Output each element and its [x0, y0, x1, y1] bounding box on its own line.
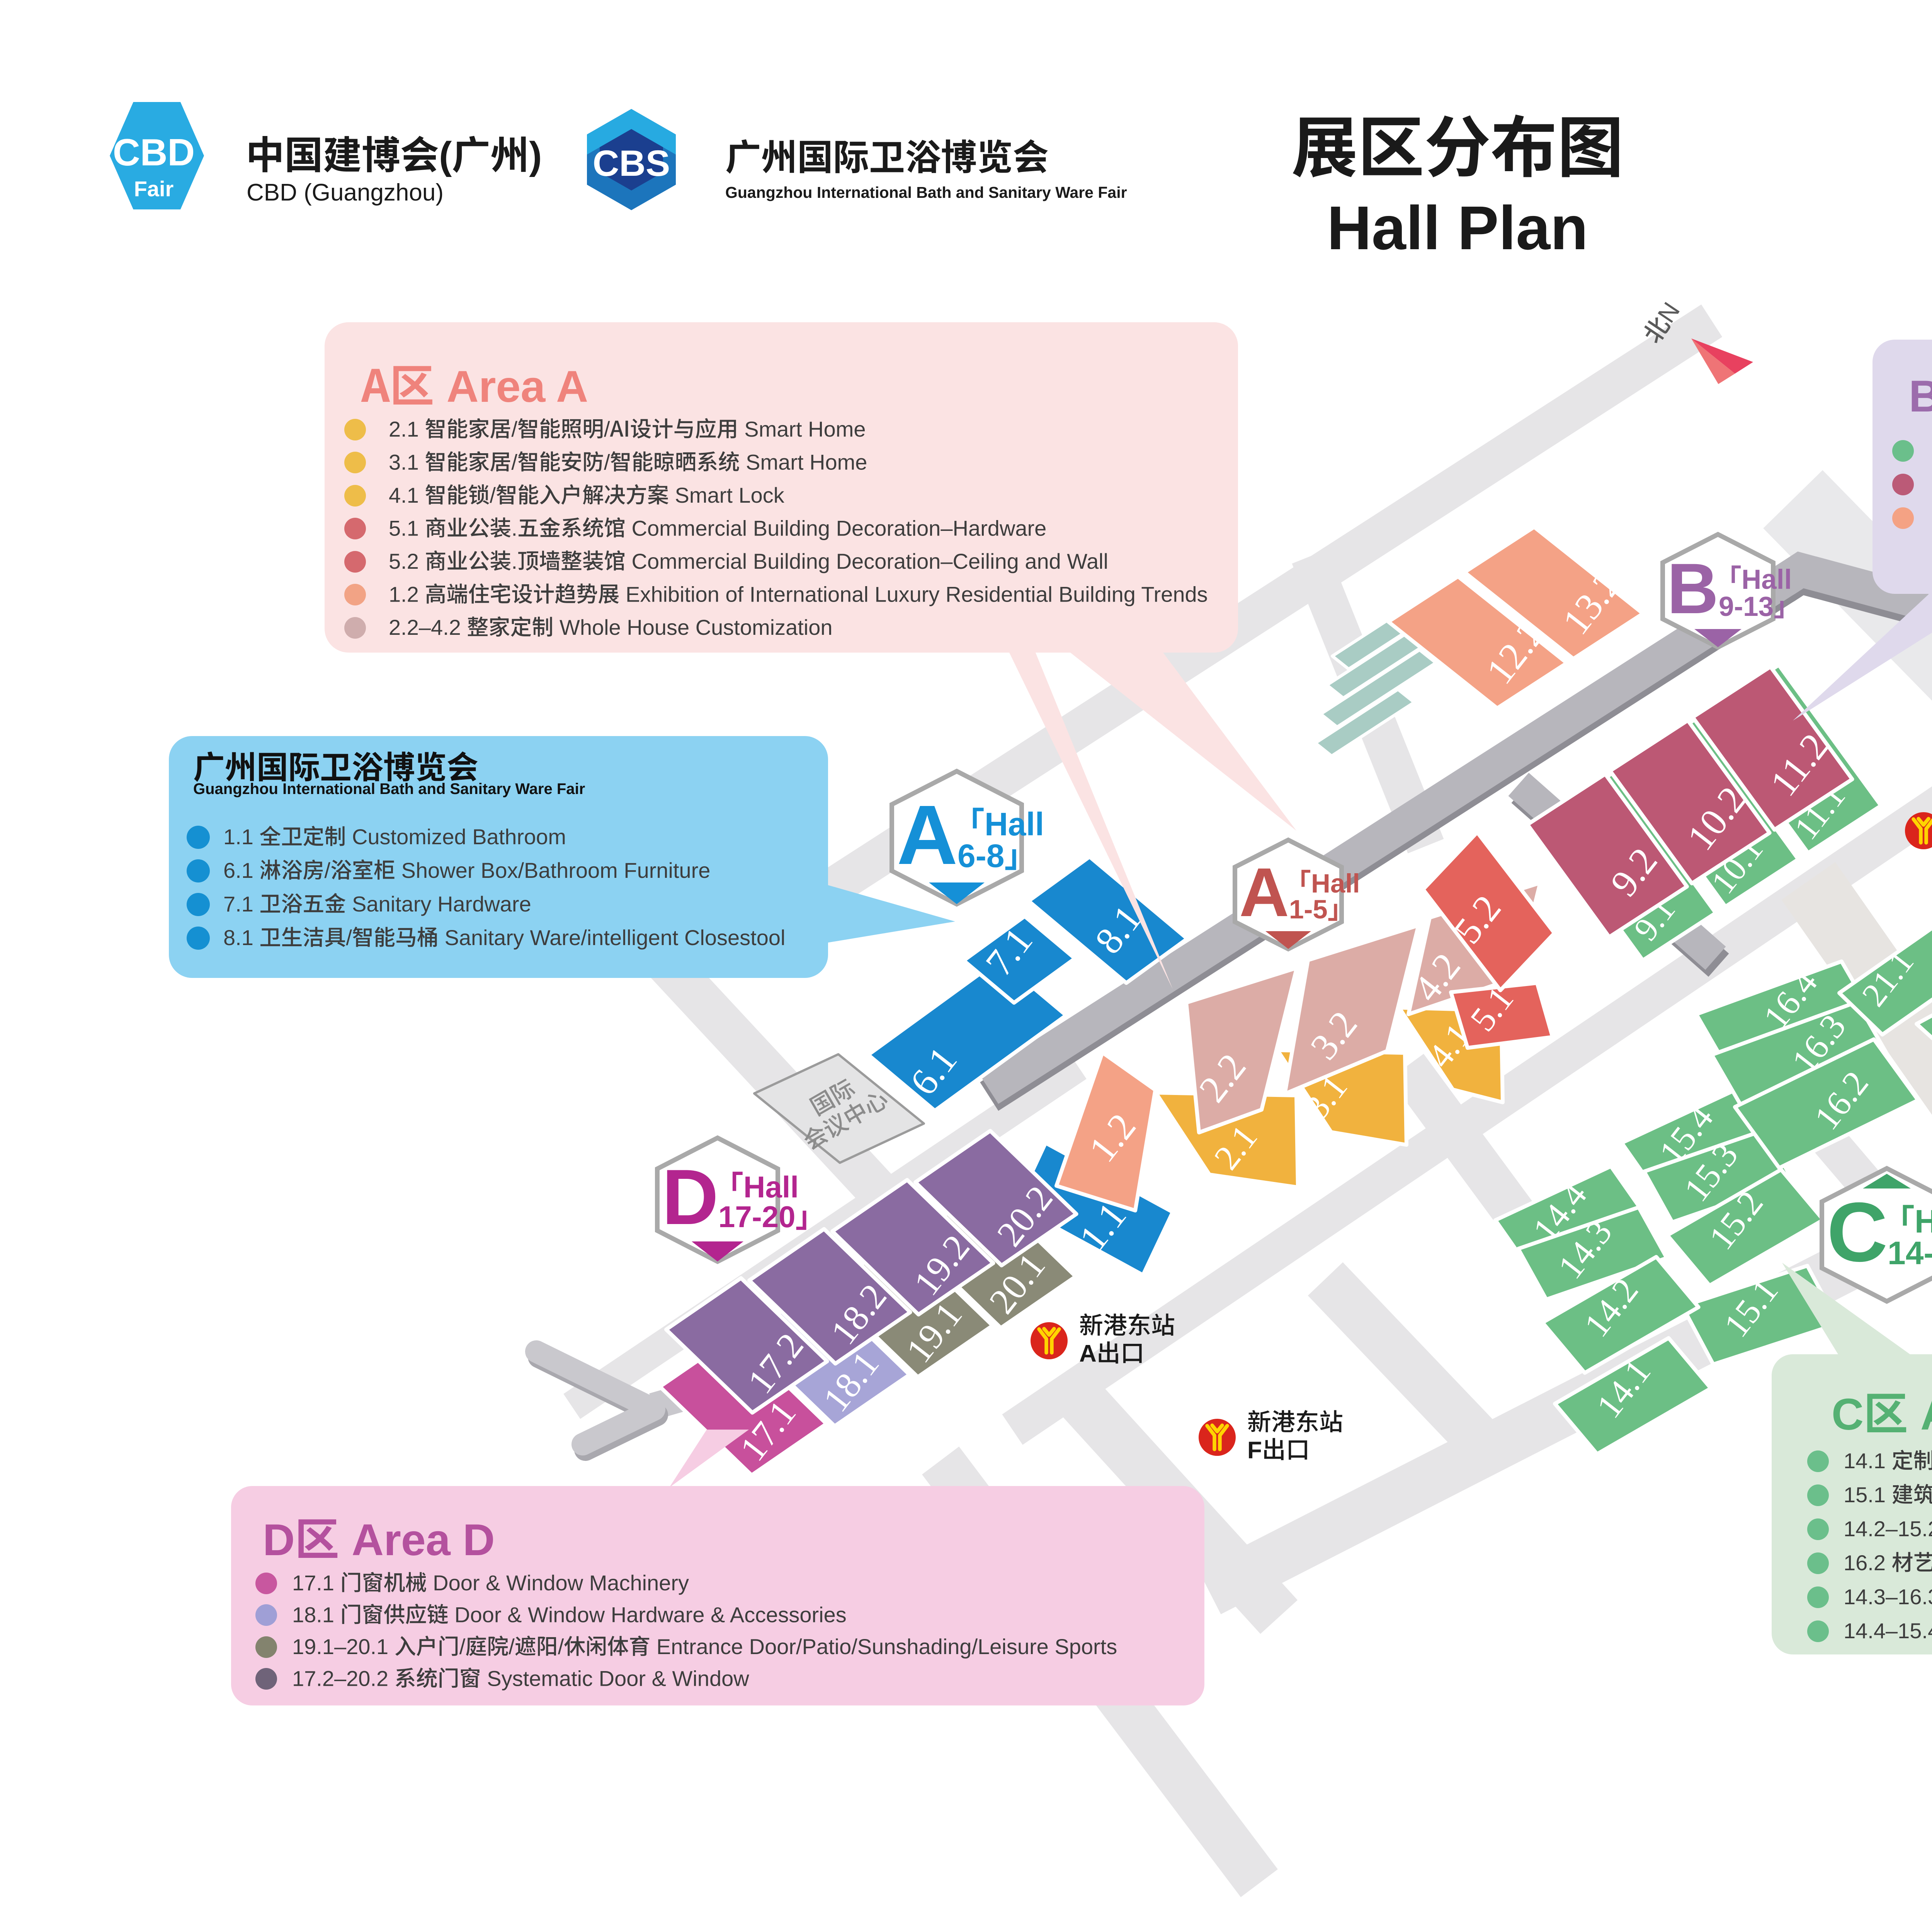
svg-text:CBD: CBD — [113, 131, 195, 173]
svg-text:19.1–20.1 入户门/庭院/遮阳/休闲体育 Entra: 19.1–20.1 入户门/庭院/遮阳/休闲体育 Entrance Door/P… — [292, 1629, 1117, 1661]
svg-text:5.2 商业公装.顶墙整装馆 Commercial Buil: 5.2 商业公装.顶墙整装馆 Commercial Building Decor… — [389, 544, 1108, 575]
svg-text:14.4–15.4 材料/五金 Material & Har: 14.4–15.4 材料/五金 Material & Hardware — [1844, 1614, 1932, 1645]
svg-text:4.1 智能锁/智能入户解决方案 Smart Lock: 4.1 智能锁/智能入户解决方案 Smart Lock — [389, 478, 785, 509]
svg-text:14.3–16.3 家居材料 Interior Decora: 14.3–16.3 家居材料 Interior Decorative Mater… — [1844, 1580, 1932, 1611]
svg-text:Guangzhou International Bath a: Guangzhou International Bath and Sanitar… — [193, 780, 585, 797]
svg-text:A: A — [897, 788, 957, 882]
svg-text:16.2 材艺·国际馆 International Hall: 16.2 材艺·国际馆 International Hall –Hardware… — [1844, 1546, 1932, 1577]
svg-text:中国建博会(广州): 中国建博会(广州) — [246, 124, 542, 180]
svg-text:6.1 淋浴房/浴室柜 Shower Box/Bathroo: 6.1 淋浴房/浴室柜 Shower Box/Bathroom Furnitur… — [223, 853, 710, 884]
svg-text:18.1 门窗供应链 Door & Window Hard: 18.1 门窗供应链 Door & Window Hardware & Acce… — [292, 1598, 847, 1629]
svg-text:C: C — [1827, 1185, 1888, 1279]
svg-text:5.1 商业公装.五金系统馆 Commercial Buil: 5.1 商业公装.五金系统馆 Commercial Building Decor… — [389, 511, 1046, 542]
svg-text:CBD (Guangzhou): CBD (Guangzhou) — [247, 179, 444, 206]
svg-text:1.1 全卫定制 Customized Bathroom: 1.1 全卫定制 Customized Bathroom — [223, 820, 566, 851]
svg-text:Hall Plan: Hall Plan — [1327, 193, 1588, 262]
svg-text:A: A — [1239, 854, 1289, 931]
svg-text:14.1 定制五金 Furniture Hardware: 14.1 定制五金 Furniture Hardware — [1844, 1444, 1932, 1475]
svg-text:广州国际卫浴博览会: 广州国际卫浴博览会 — [725, 128, 1049, 180]
svg-text:1.2 高端住宅设计趋势展 Exhibition of In: 1.2 高端住宅设计趋势展 Exhibition of Internationa… — [389, 577, 1208, 609]
svg-text:CBS: CBS — [593, 143, 670, 184]
svg-text:3.1 智能家居/智能安防/智能晾晒系统 Smart Hom: 3.1 智能家居/智能安防/智能晾晒系统 Smart Home — [389, 445, 867, 476]
svg-text:Fair: Fair — [134, 177, 174, 201]
svg-text:D: D — [662, 1153, 719, 1241]
svg-text:2.2–4.2 整家定制 Whole House Custo: 2.2–4.2 整家定制 Whole House Customization — [389, 610, 833, 641]
svg-text:2.1 智能家居/智能照明/AI设计与应用 Smart Ho: 2.1 智能家居/智能照明/AI设计与应用 Smart Home — [389, 412, 866, 443]
svg-text:17.2–20.2 系统门窗 Systematic Door: 17.2–20.2 系统门窗 Systematic Door & Window — [292, 1661, 749, 1693]
svg-text:15.1 建筑装饰五金 Decorative Hardwar: 15.1 建筑装饰五金 Decorative Hardware — [1844, 1478, 1932, 1509]
svg-text:展区分布图: 展区分布图 — [1291, 94, 1624, 190]
svg-text:14.2–15.2 定制五金 Furniture Hardw: 14.2–15.2 定制五金 Furniture Hardware — [1844, 1512, 1932, 1543]
svg-text:17.1 门窗机械 Door & Window Machi: 17.1 门窗机械 Door & Window Machinery — [292, 1566, 689, 1597]
svg-text:Guangzhou International Bath a: Guangzhou International Bath and Sanitar… — [725, 184, 1127, 201]
svg-text:B: B — [1667, 549, 1719, 629]
svg-text:B区 Area B: B区 Area B — [1909, 360, 1932, 425]
svg-text:8.1 卫生洁具/智能马桶 Sanitary Ware/in: 8.1 卫生洁具/智能马桶 Sanitary Ware/intelligent … — [223, 920, 785, 952]
svg-text:7.1 卫浴五金 Sanitary Hardware: 7.1 卫浴五金 Sanitary Hardware — [223, 887, 531, 918]
